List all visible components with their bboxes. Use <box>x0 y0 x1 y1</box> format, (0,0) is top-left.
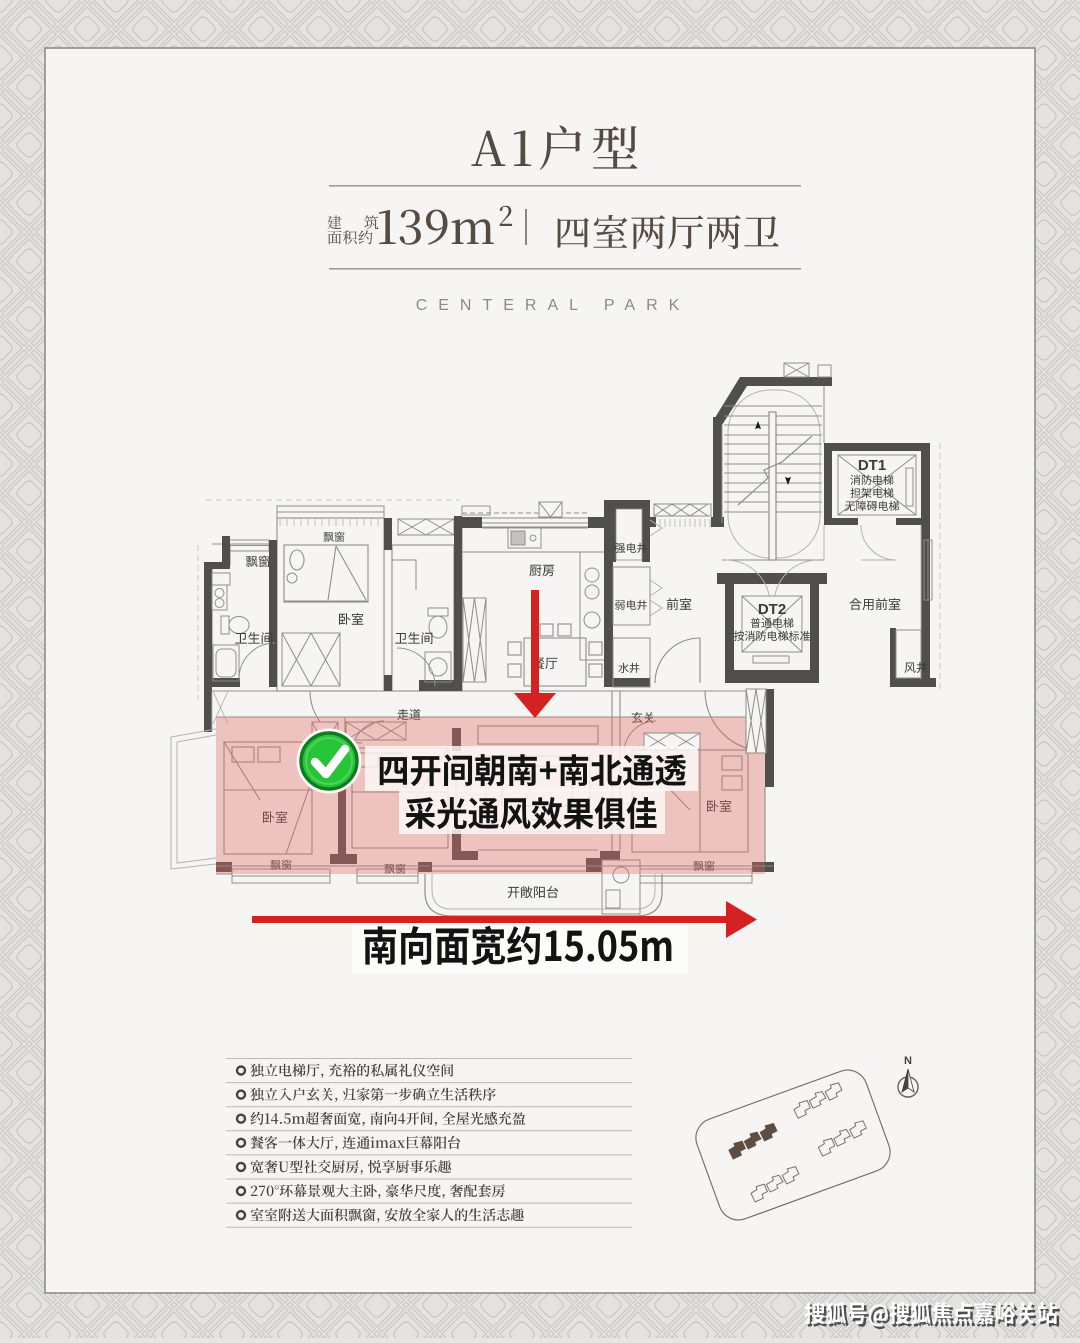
svg-text:CENTERAL PARK: CENTERAL PARK <box>416 297 691 314</box>
svg-text:N: N <box>904 1055 912 1067</box>
svg-text:DT1: DT1 <box>858 457 886 474</box>
svg-text:DT2: DT2 <box>758 601 786 618</box>
